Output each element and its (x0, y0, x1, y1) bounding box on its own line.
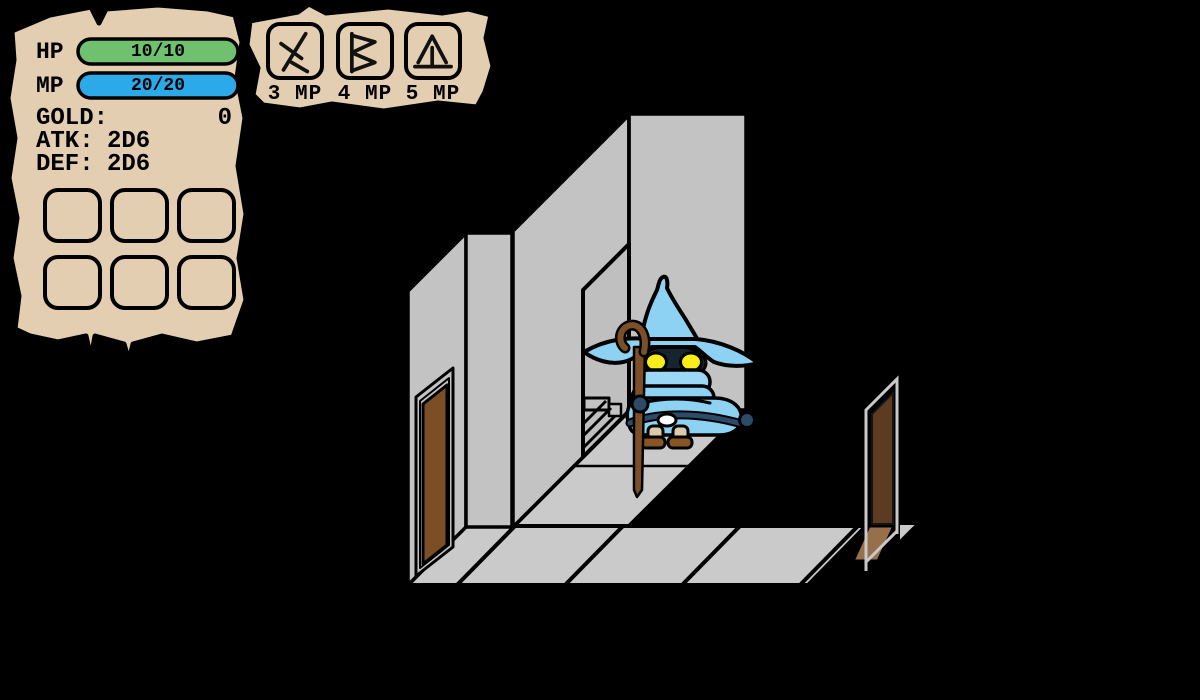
game-viewport[interactable]: HP 10/10 MP 20/20 GOLD: 0 ATK: 2D6 DEF: … (0, 0, 1200, 700)
inventory-slot-4[interactable] (43, 255, 102, 310)
hp-value: 10/10 (78, 42, 238, 62)
gold-value: 0 (140, 108, 232, 130)
inventory-slot-1[interactable] (43, 188, 102, 243)
hud-layer (0, 0, 1200, 700)
def-label: DEF: (36, 154, 94, 176)
hp-label: HP (36, 41, 64, 64)
spell-cost-1: 3 MP (265, 84, 325, 105)
mp-value: 20/20 (78, 76, 238, 96)
rune-peak-icon (410, 28, 456, 74)
spell-button-3[interactable] (404, 22, 462, 80)
gold-label: GOLD: (36, 108, 108, 130)
inventory-slot-6[interactable] (177, 255, 236, 310)
mp-label: MP (36, 75, 64, 98)
spell-cost-3: 5 MP (403, 84, 463, 105)
rune-angular-b-icon (342, 28, 388, 74)
atk-label: ATK: (36, 131, 94, 153)
atk-value: 2D6 (107, 131, 150, 153)
def-value: 2D6 (107, 154, 150, 176)
inventory-slot-2[interactable] (110, 188, 169, 243)
rune-branch-icon (272, 28, 318, 74)
inventory-slot-3[interactable] (177, 188, 236, 243)
spell-cost-2: 4 MP (335, 84, 395, 105)
spell-button-1[interactable] (266, 22, 324, 80)
spell-button-2[interactable] (336, 22, 394, 80)
inventory-slot-5[interactable] (110, 255, 169, 310)
